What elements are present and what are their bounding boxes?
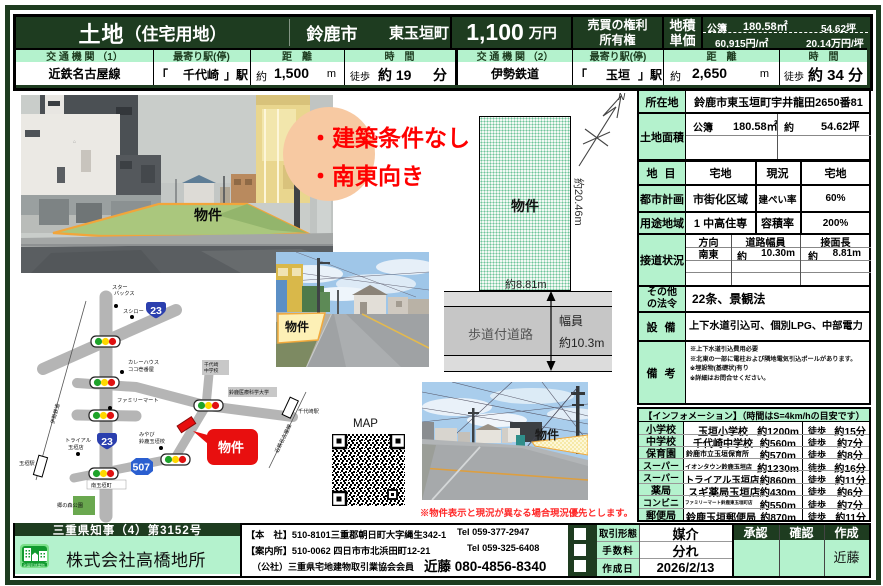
svg-text:郷の森公園: 郷の森公園 [57, 501, 83, 509]
svg-text:千代崎駅: 千代崎駅 [298, 407, 320, 415]
svg-text:全国宅地建物: 全国宅地建物 [23, 562, 45, 567]
svg-text:鈴鹿玉垣校: 鈴鹿玉垣校 [139, 437, 165, 445]
svg-text:23: 23 [101, 436, 113, 448]
svg-text:千代崎: 千代崎 [204, 361, 219, 368]
svg-text:23: 23 [150, 305, 162, 317]
svg-text:スター: スター [112, 283, 128, 291]
svg-text:バックス: バックス [114, 290, 135, 297]
svg-text:南玉垣町: 南玉垣町 [91, 481, 112, 489]
svg-text:507: 507 [133, 462, 151, 474]
svg-text:近鉄名古屋線: 近鉄名古屋線 [272, 423, 293, 454]
svg-text:玉垣駅: 玉垣駅 [19, 459, 35, 467]
svg-text:N: N [618, 92, 626, 103]
svg-text:トライアル: トライアル [65, 437, 91, 444]
svg-text:中学校: 中学校 [204, 367, 219, 374]
svg-text:玉垣店: 玉垣店 [68, 443, 84, 451]
svg-text:みやび: みやび [139, 430, 155, 438]
svg-text:⌂: ⌂ [73, 139, 76, 145]
svg-text:物件: 物件 [218, 440, 244, 455]
svg-text:ファミリーマート: ファミリーマート [117, 397, 159, 404]
svg-text:ココ壱番屋: ココ壱番屋 [128, 365, 154, 373]
svg-text:伊勢鉄道: 伊勢鉄道 [48, 403, 61, 425]
svg-text:カレーハウス: カレーハウス [128, 358, 159, 366]
svg-text:鈴鹿医療科学大学: 鈴鹿医療科学大学 [229, 389, 269, 396]
svg-text:物件: 物件 [535, 427, 559, 442]
svg-text:スシロー: スシロー [123, 308, 144, 315]
svg-text:物件: 物件 [194, 207, 222, 223]
